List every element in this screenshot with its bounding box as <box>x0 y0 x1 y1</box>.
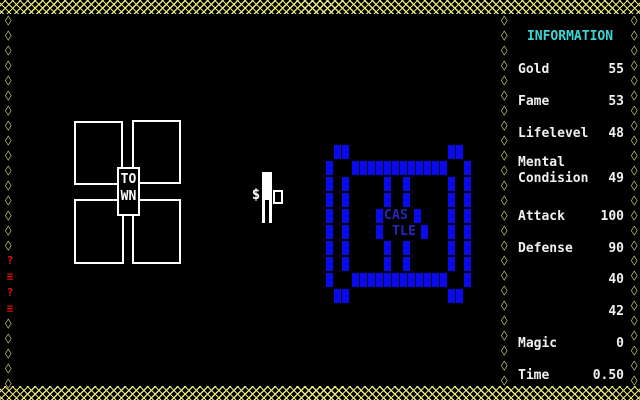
castle-block <box>403 257 410 271</box>
castle-block <box>326 257 333 271</box>
castle-block <box>464 241 471 255</box>
castle-block <box>368 273 375 287</box>
castle-block <box>326 177 333 191</box>
castle-block <box>432 161 439 175</box>
stat-row: Defense90 <box>518 241 624 257</box>
castle-block <box>342 209 349 223</box>
castle-block <box>448 257 455 271</box>
castle-block <box>334 145 341 159</box>
castle-block <box>464 257 471 271</box>
castle-block <box>392 273 399 287</box>
castle-block <box>414 209 421 223</box>
stat-value: 0 <box>616 336 624 352</box>
castle-block <box>352 161 359 175</box>
stat-label: Gold <box>518 62 549 78</box>
castle-block <box>342 145 349 159</box>
stat-label: Fame <box>518 94 549 110</box>
stat-label: Defense <box>518 241 573 257</box>
stat-label: Mental Condision <box>518 155 588 187</box>
castle-block <box>400 161 407 175</box>
town-label: TO WN <box>119 171 138 205</box>
castle-block <box>456 145 463 159</box>
stat-value: 48 <box>608 126 624 142</box>
castle-block <box>424 273 431 287</box>
castle-block <box>342 289 349 303</box>
castle-block <box>448 177 455 191</box>
panel-left-chain: ◇ ◇ ◇ ◇ ◇ ◇ ◇ ◇ ◇ ◇ ◇ ◇ ◇ ◇ ◇ ◇ ◇ ◇ ◇ ◇ … <box>499 13 509 386</box>
castle-block <box>421 225 428 239</box>
castle-block <box>326 273 333 287</box>
castle-block <box>456 289 463 303</box>
castle-block <box>448 225 455 239</box>
stat-row: Attack100 <box>518 209 624 225</box>
castle-block <box>384 161 391 175</box>
stat-value: 49 <box>608 171 624 187</box>
stat-row: Fame53 <box>518 94 624 110</box>
castle-block <box>416 161 423 175</box>
castle-block <box>326 225 333 239</box>
castle-block <box>416 273 423 287</box>
town-center: TO WN <box>117 167 140 216</box>
stat-row: 42 <box>518 304 624 320</box>
bottom-border <box>0 386 640 400</box>
castle-block <box>464 209 471 223</box>
castle-block <box>432 273 439 287</box>
castle-label-bottom: TLE <box>392 225 416 239</box>
castle-block <box>376 273 383 287</box>
castle-block <box>448 145 455 159</box>
castle-block <box>464 177 471 191</box>
castle-block <box>424 161 431 175</box>
castle-block <box>440 273 447 287</box>
castle-block <box>440 161 447 175</box>
castle-block <box>360 273 367 287</box>
castle-block <box>326 241 333 255</box>
top-border <box>0 0 640 14</box>
castle-block <box>400 273 407 287</box>
left-border-chain-bottom: ◇ ◇ ◇ ◇ ◇ <box>3 316 13 386</box>
castle-block <box>352 273 359 287</box>
castle-block <box>448 289 455 303</box>
stat-value: 55 <box>608 62 624 78</box>
castle-block <box>448 193 455 207</box>
stat-row: Gold55 <box>518 62 624 78</box>
game-screen: ◇ ◇ ◇ ◇ ◇ ◇ ◇ ◇ ◇ ◇ ◇ ◇ ◇ ◇ ◇ ◇ ? ≡ ? ≡ … <box>0 0 640 400</box>
castle-block <box>408 273 415 287</box>
left-border-chain-top: ◇ ◇ ◇ ◇ ◇ ◇ ◇ ◇ ◇ ◇ ◇ ◇ ◇ ◇ ◇ ◇ <box>3 13 13 253</box>
castle-block <box>326 209 333 223</box>
stat-label: Magic <box>518 336 557 352</box>
castle-block <box>326 161 333 175</box>
castle-block <box>342 177 349 191</box>
castle-block <box>384 257 391 271</box>
castle-block <box>464 193 471 207</box>
panel-title: INFORMATION <box>510 29 630 45</box>
stat-label: Time <box>518 368 549 384</box>
stat-row: Mental Condision49 <box>518 155 624 187</box>
castle-block <box>448 209 455 223</box>
castle-block <box>342 225 349 239</box>
castle-block <box>403 177 410 191</box>
castle-block <box>360 161 367 175</box>
castle-block <box>448 241 455 255</box>
castle-block <box>376 225 383 239</box>
stat-label: Lifelevel <box>518 126 588 142</box>
stat-row: Time0.50 <box>518 368 624 384</box>
castle-block <box>376 209 383 223</box>
stat-label: Attack <box>518 209 565 225</box>
stat-value: 40 <box>608 272 624 288</box>
stat-value: 90 <box>608 241 624 257</box>
castle-block <box>403 241 410 255</box>
castle-block <box>342 257 349 271</box>
castle-block <box>464 161 471 175</box>
castle-block <box>384 193 391 207</box>
castle-block <box>408 161 415 175</box>
stat-value: 42 <box>608 304 624 320</box>
castle-block <box>342 193 349 207</box>
stat-row: Lifelevel48 <box>518 126 624 142</box>
castle-block <box>403 193 410 207</box>
castle-block <box>334 289 341 303</box>
panel-right-chain: ◇ ◇ ◇ ◇ ◇ ◇ ◇ ◇ ◇ ◇ ◇ ◇ ◇ ◇ ◇ ◇ ◇ ◇ ◇ ◇ … <box>629 13 639 386</box>
castle-block <box>376 161 383 175</box>
castle-block <box>464 273 471 287</box>
castle-block <box>384 177 391 191</box>
castle-block <box>342 241 349 255</box>
stat-value: 0.50 <box>593 368 624 384</box>
castle-block <box>464 225 471 239</box>
castle-block <box>384 273 391 287</box>
stat-value: 100 <box>601 209 624 225</box>
stat-row: Magic0 <box>518 336 624 352</box>
castle-label-top: CAS <box>384 209 408 223</box>
castle-block <box>384 241 391 255</box>
castle-block <box>326 193 333 207</box>
castle-block <box>392 161 399 175</box>
stat-row: 40 <box>518 272 624 288</box>
stat-value: 53 <box>608 94 624 110</box>
castle-block <box>368 161 375 175</box>
